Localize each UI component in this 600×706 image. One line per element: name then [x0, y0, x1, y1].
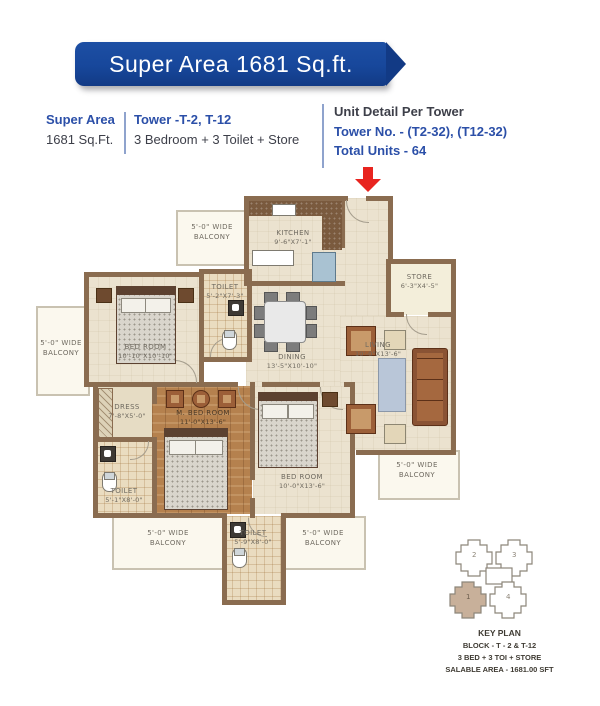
key-plan-title: KEY PLAN: [432, 628, 567, 638]
wall: [204, 382, 238, 387]
kitchen-fridge: [312, 252, 336, 282]
dining-set: [258, 292, 328, 350]
label-kitchen: KITCHEN9'-6"X7'-1": [253, 228, 333, 248]
label-toilet1: TOILET5'-2"X7'-3": [200, 282, 250, 302]
key-plan-tower-2: 2: [472, 551, 476, 559]
toilet-seat: [232, 548, 247, 568]
toilet-seat: [222, 330, 237, 350]
wall: [344, 382, 355, 387]
wall: [386, 312, 404, 317]
unit-detail-title: Unit Detail Per Tower: [334, 102, 574, 122]
label-store: STORE6'-3"X4'-5": [386, 272, 453, 292]
wall: [152, 437, 157, 518]
label-dress: DRESS7'-8"X5'-0": [100, 402, 154, 422]
tower-title: Tower -T-2, T-12: [134, 110, 324, 130]
label-toilet3: TOILET5'-9"X8'-0": [226, 528, 280, 548]
dress-chair: [218, 390, 236, 408]
nightstand: [96, 288, 112, 303]
label-balcony-bottom-right: 5'-0" WIDEBALCONY: [288, 528, 358, 548]
wall: [84, 272, 204, 277]
tower-block: Tower -T-2, T-12 3 Bedroom + 3 Toilet + …: [134, 110, 324, 149]
wall: [199, 357, 252, 362]
super-area-block: Super Area 1681 Sq.Ft.: [46, 110, 122, 149]
wall: [262, 382, 320, 387]
label-balcony-top: 5'-0" WIDEBALCONY: [178, 222, 246, 242]
label-balcony-right: 5'-0" WIDEBALCONY: [382, 460, 452, 480]
master-bed: [164, 428, 228, 510]
label-master-bedroom: M. BED ROOM11'-0"X13'-6": [158, 408, 248, 428]
header-banner: Super Area 1681 Sq.ft.: [75, 42, 387, 86]
wall: [84, 272, 89, 387]
key-plan-salable: SALABLE AREA - 1681.00 SFT: [432, 665, 567, 674]
key-plan-tower-3: 3: [512, 551, 516, 559]
washbasin: [228, 300, 244, 316]
key-plan-config: 3 BED + 3 TOI + STORE: [432, 653, 567, 662]
wall: [152, 382, 157, 404]
label-balcony-left: 5'-0" WIDEBALCONY: [37, 338, 85, 358]
wall: [356, 450, 456, 455]
wall: [281, 513, 286, 605]
wall: [388, 259, 456, 264]
unit-detail-block: Unit Detail Per Tower Tower No. - (T2-32…: [334, 102, 574, 161]
nightstand: [178, 288, 194, 303]
wall: [428, 312, 456, 317]
bed: [258, 392, 318, 468]
rug: [378, 358, 406, 412]
floorplan-page: Super Area 1681 Sq.ft. Super Area 1681 S…: [0, 0, 600, 706]
key-plan-block: BLOCK - T - 2 & T-12: [432, 641, 567, 650]
dress-stool: [192, 390, 210, 408]
key-plan-diagram: [440, 538, 558, 626]
key-plan-tower-4: 4: [506, 593, 510, 601]
tower-subtitle: 3 Bedroom + 3 Toilet + Store: [134, 130, 324, 150]
key-plan-tower-1: 1: [466, 593, 470, 601]
label-balcony-bottom-left: 5'-0" WIDEBALCONY: [122, 528, 214, 548]
dress-chair: [166, 390, 184, 408]
label-bedroom1: BED ROOM10'-10"X10'-10": [98, 342, 193, 362]
info-divider-2: [322, 104, 324, 168]
wall: [388, 196, 393, 264]
super-area-value: 1681 Sq.Ft.: [46, 130, 122, 150]
label-dining: DINING13'-5"X10'-10": [252, 352, 332, 372]
label-bedroom2: BED ROOM10'-0"X13'-6": [258, 472, 346, 492]
entry-arrow-icon: [355, 167, 381, 191]
sofa: [412, 348, 448, 426]
washbasin: [100, 446, 116, 462]
wall: [284, 513, 355, 518]
wall: [96, 513, 227, 518]
super-area-label: Super Area: [46, 110, 122, 130]
page-title: Super Area 1681 Sq.ft.: [109, 51, 353, 78]
wall: [222, 600, 286, 605]
armchair: [346, 404, 376, 434]
label-toilet2: TOILET5'-1"X8'-0": [98, 486, 150, 506]
unit-detail-units: Total Units - 64: [334, 141, 574, 161]
nightstand: [322, 392, 338, 407]
info-divider-1: [124, 112, 126, 154]
label-living: LIVING10'-0"X13'-6": [338, 340, 418, 360]
kitchen-sink: [252, 250, 294, 266]
unit-detail-towers: Tower No. - (T2-32), (T12-32): [334, 122, 574, 142]
side-table: [384, 424, 406, 444]
wall: [250, 498, 255, 518]
kitchen-hob: [272, 204, 296, 216]
wall: [222, 513, 227, 605]
